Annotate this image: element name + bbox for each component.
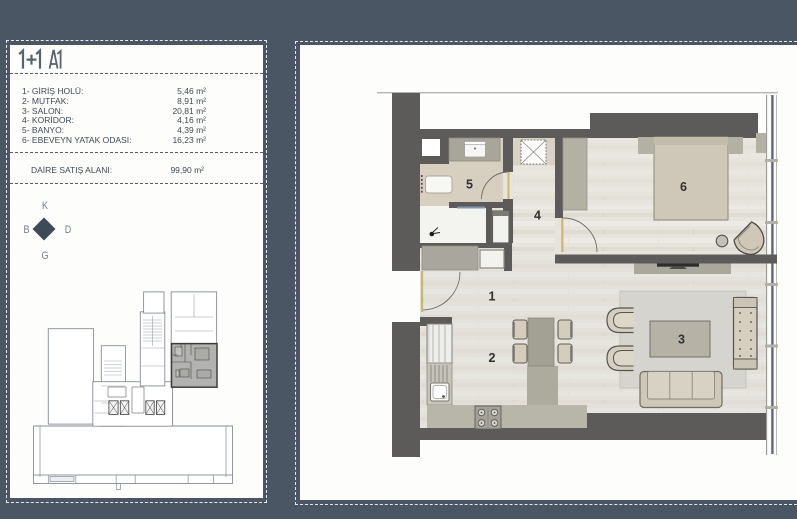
svg-text:2: 2	[489, 351, 496, 365]
svg-text:4: 4	[534, 209, 541, 223]
svg-text:5: 5	[466, 178, 473, 192]
svg-text:1: 1	[489, 290, 496, 304]
svg-text:3: 3	[678, 333, 685, 347]
svg-text:6: 6	[680, 180, 687, 194]
